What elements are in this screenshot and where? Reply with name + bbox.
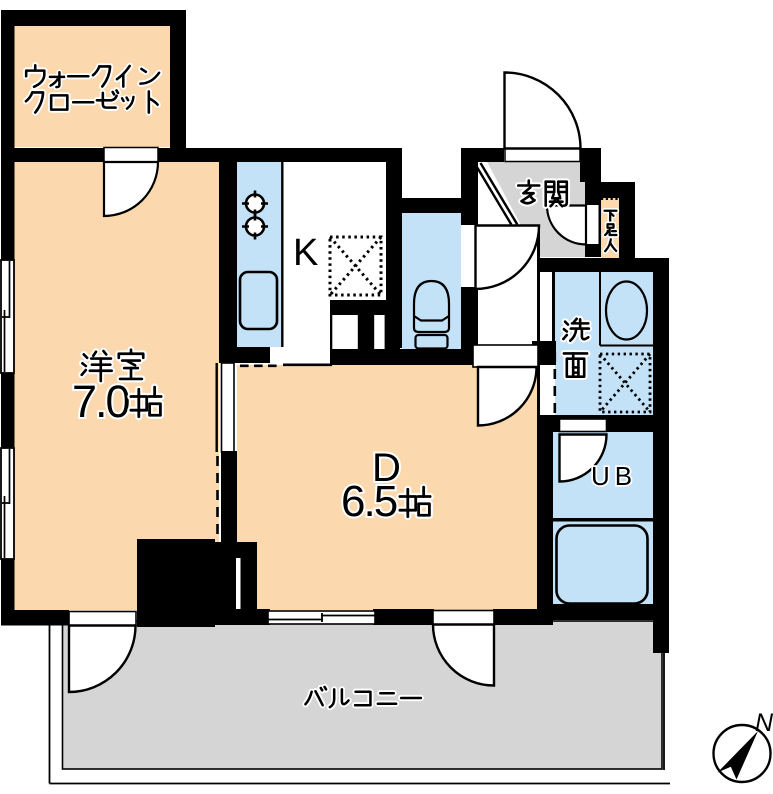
svg-text:N: N [755,709,773,737]
svg-text:7.0: 7.0 [72,376,130,427]
svg-text:K: K [293,232,318,274]
svg-text:UB: UB [591,461,637,491]
svg-text:6.5: 6.5 [341,477,397,526]
